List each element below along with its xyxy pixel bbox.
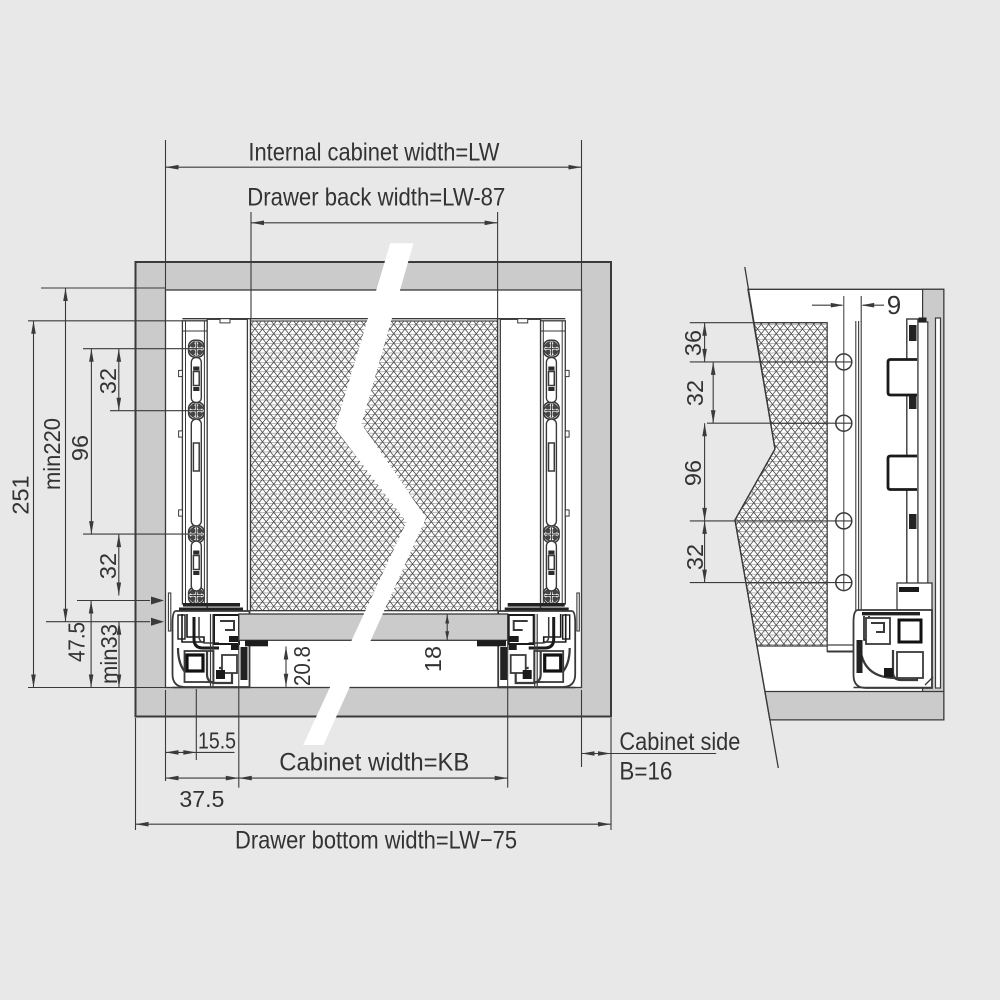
svg-text:18: 18 (420, 646, 446, 672)
svg-text:36: 36 (680, 330, 706, 356)
svg-text:min33: min33 (96, 624, 122, 684)
svg-text:32: 32 (682, 380, 708, 406)
svg-text:Drawer bottom width=LW−75: Drawer bottom width=LW−75 (235, 827, 517, 855)
svg-text:32: 32 (95, 368, 121, 394)
svg-text:47.5: 47.5 (64, 622, 90, 662)
svg-text:20.8: 20.8 (289, 646, 315, 686)
svg-text:15.5: 15.5 (198, 728, 236, 754)
svg-text:Drawer back width=LW-87: Drawer back width=LW-87 (247, 184, 505, 212)
svg-text:37.5: 37.5 (179, 786, 224, 812)
svg-text:32: 32 (95, 553, 121, 579)
svg-text:251: 251 (8, 475, 34, 514)
svg-text:96: 96 (67, 435, 93, 461)
svg-text:Cabinet side: Cabinet side (619, 728, 740, 756)
svg-text:32: 32 (682, 544, 708, 570)
svg-text:Internal cabinet width=LW: Internal cabinet width=LW (248, 139, 499, 167)
svg-text:96: 96 (680, 460, 706, 486)
svg-text:Cabinet width=KB: Cabinet width=KB (279, 749, 469, 777)
svg-text:B=16: B=16 (619, 758, 672, 786)
svg-text:min220: min220 (39, 418, 65, 490)
svg-text:9: 9 (887, 290, 901, 320)
